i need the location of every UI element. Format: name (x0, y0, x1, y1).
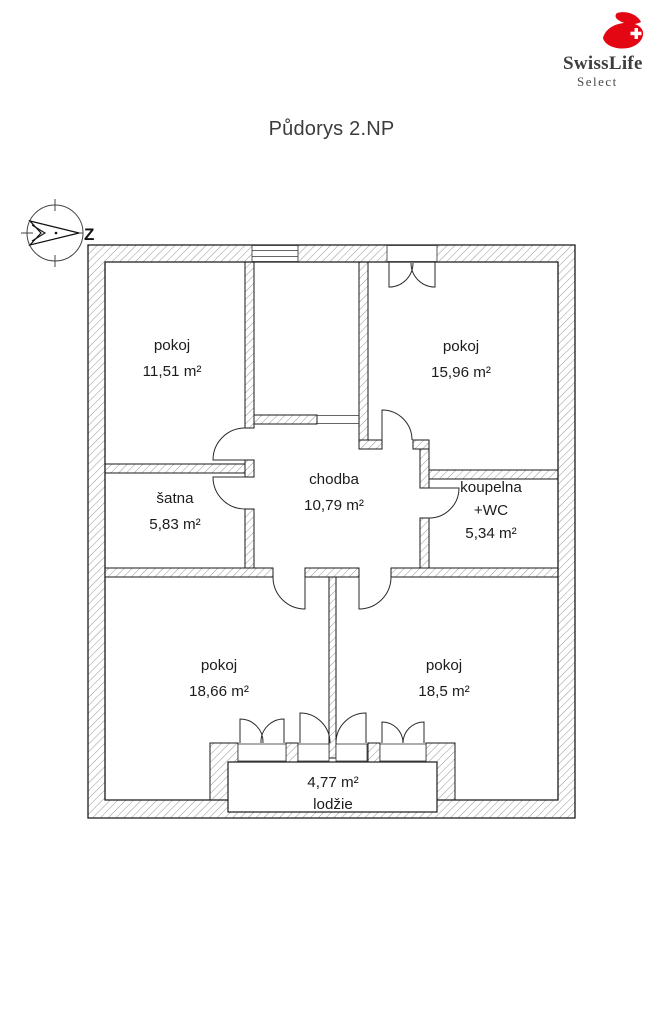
room-label-pokoj-sw: pokoj 18,66 m² (189, 657, 249, 700)
room-area: 18,66 m² (189, 683, 249, 700)
room-area: 15,96 m² (431, 364, 491, 381)
room-label-koupelna: koupelna +WC 5,34 m² (460, 479, 522, 542)
room-label-pokoj-nw: pokoj 11,51 m² (143, 337, 202, 380)
room-label-satna: šatna 5,83 m² (149, 490, 201, 533)
compass-rose (21, 199, 83, 267)
room-area: 4,77 m² (307, 774, 359, 791)
room-name: pokoj (154, 337, 190, 354)
room-area: 5,34 m² (465, 525, 517, 542)
room-name: pokoj (443, 338, 479, 355)
room-area: 11,51 m² (143, 363, 202, 380)
room-name: pokoj (201, 657, 237, 674)
room-name: lodžie (313, 796, 353, 813)
room-area: 10,79 m² (304, 497, 364, 514)
room-name: pokoj (426, 657, 462, 674)
room-label-pokoj-ne: pokoj 15,96 m² (431, 338, 491, 381)
floorplan-drawing: Z (0, 0, 663, 1024)
room-name-2: +WC (474, 502, 508, 519)
room-name: chodba (309, 471, 359, 488)
room-label-chodba: chodba 10,79 m² (304, 471, 364, 514)
window-glazing-lines (252, 251, 359, 424)
compass-label: Z (84, 225, 94, 244)
room-name: šatna (156, 490, 194, 507)
room-area: 5,83 m² (149, 516, 201, 533)
page: Půdorys 2.NP SwissLife Select Z (0, 0, 663, 1024)
room-name: koupelna (460, 479, 522, 496)
room-area: 18,5 m² (418, 683, 470, 700)
room-label-pokoj-se: pokoj 18,5 m² (418, 657, 470, 700)
